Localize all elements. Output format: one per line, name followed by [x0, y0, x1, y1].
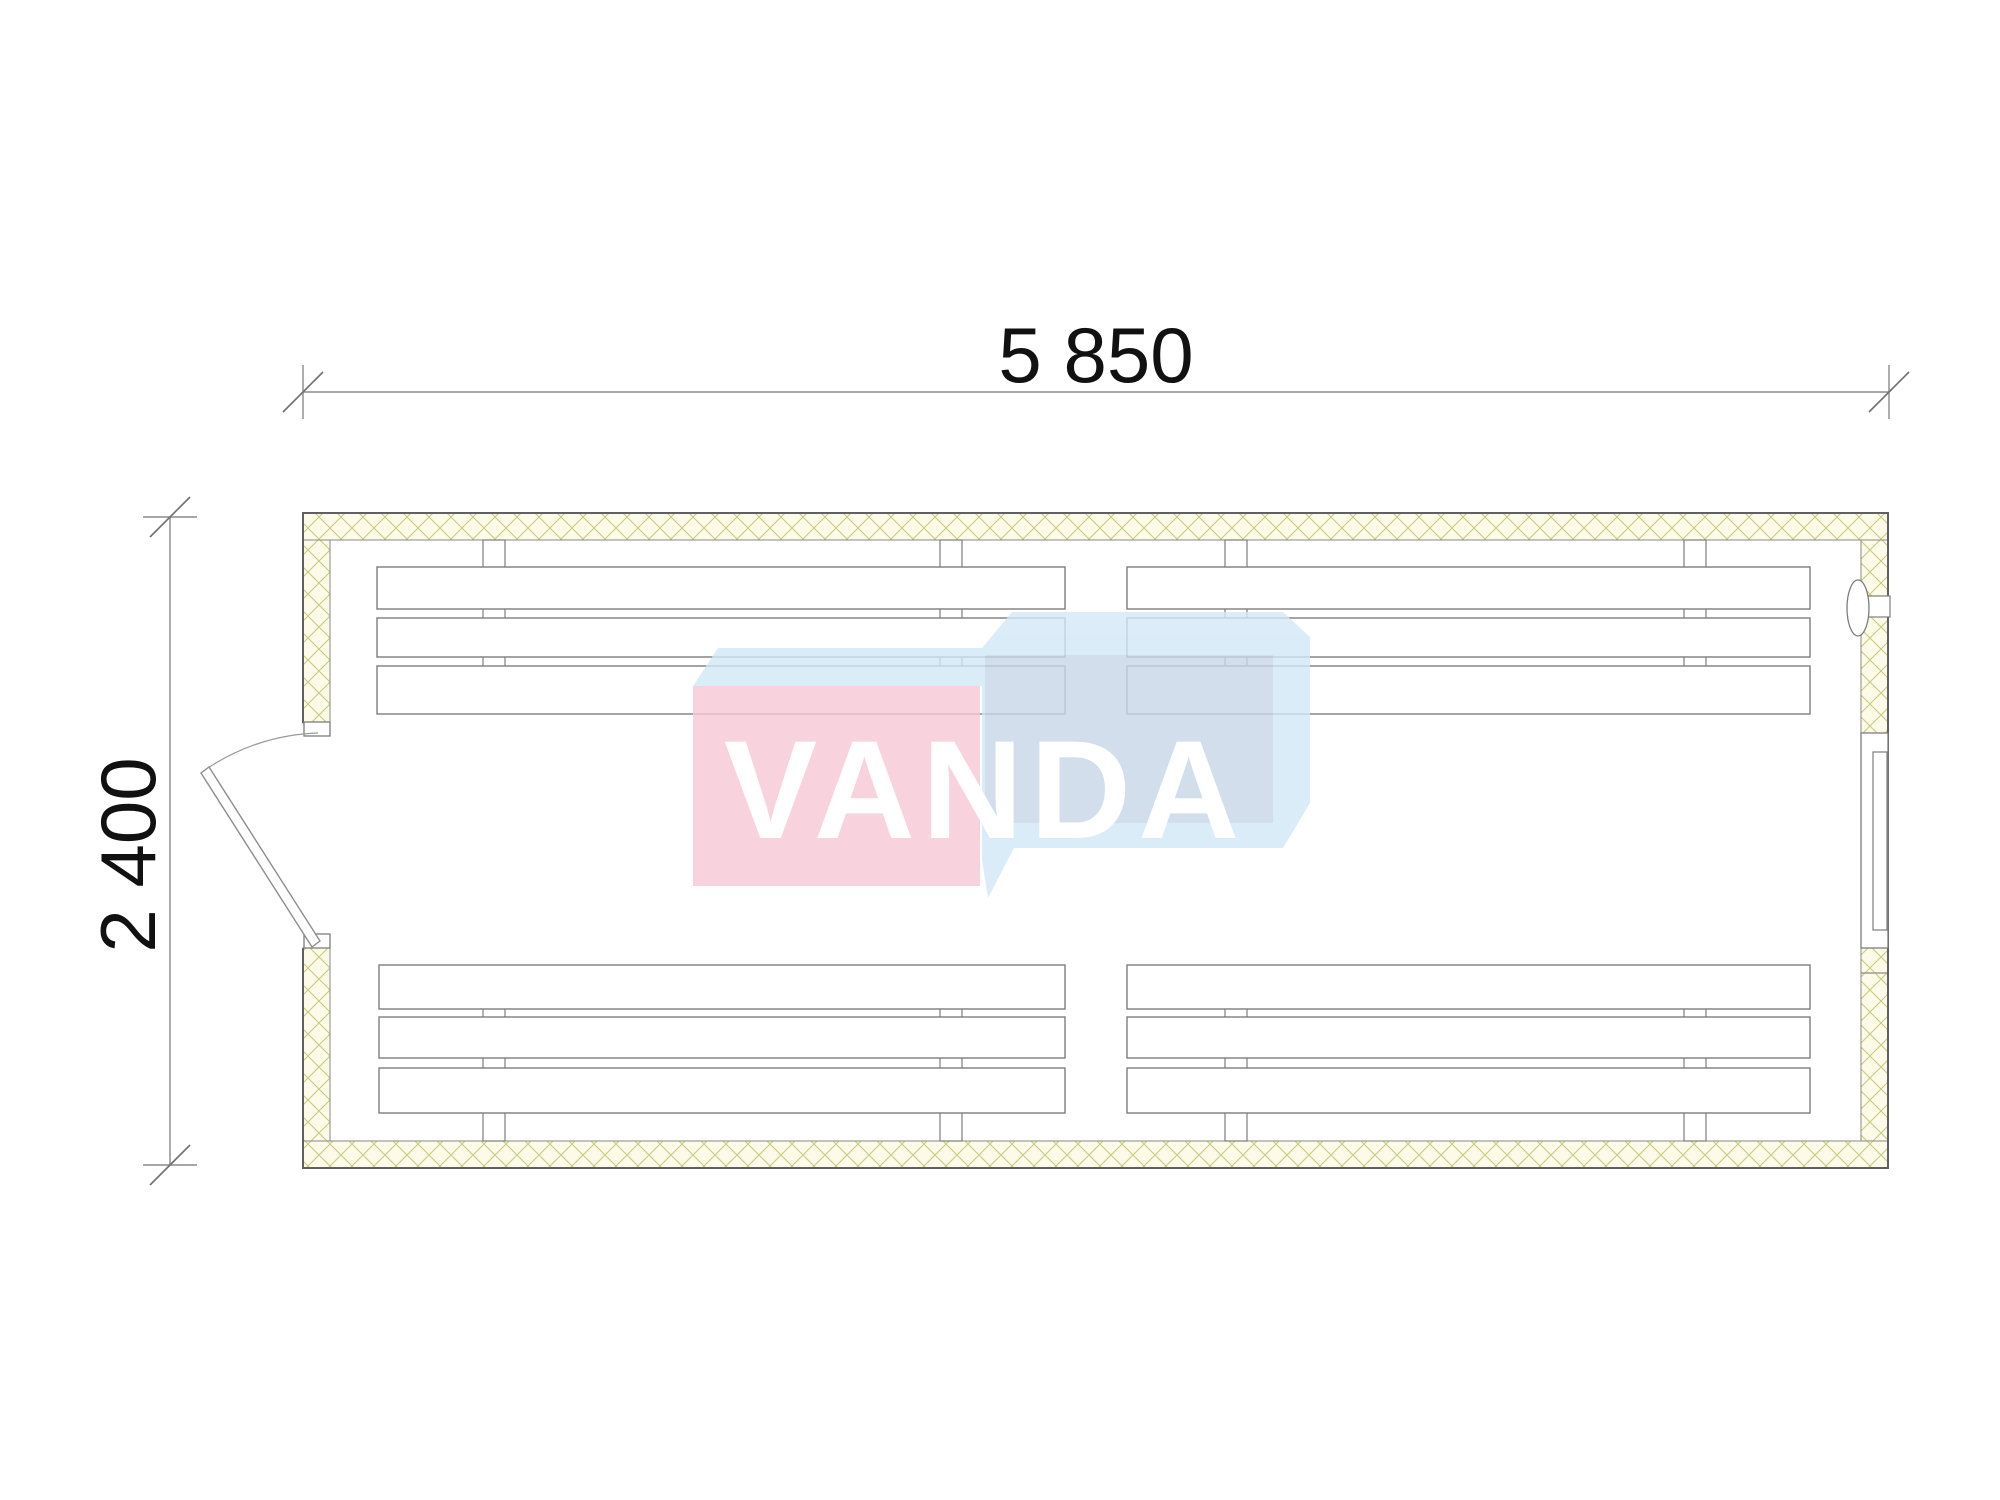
handle-plate	[1847, 580, 1869, 636]
vanda-watermark: VANDA	[693, 612, 1310, 898]
wall-left-upper	[303, 540, 330, 723]
door-leaf	[201, 767, 320, 947]
entrance-door	[201, 722, 330, 948]
wall-left-lower	[303, 948, 330, 1141]
logo-text: VANDA	[724, 711, 1246, 868]
dim-width-label: 5 850	[998, 311, 1193, 399]
window-leaf	[1873, 752, 1887, 930]
right-wall-window	[1861, 733, 1888, 948]
bench-bottom-left	[379, 965, 1065, 1141]
dim-height-label: 2 400	[84, 757, 172, 952]
wall-top	[303, 513, 1888, 540]
logo-pink-top-face	[693, 648, 982, 686]
door-swing-arc	[205, 733, 318, 770]
floor-plan-drawing: VANDA 5 850 2 400	[0, 0, 2000, 1500]
wall-right-lower	[1861, 948, 1888, 1141]
dimension-width: 5 850	[283, 311, 1909, 419]
wall-bottom	[303, 1141, 1888, 1168]
dimension-height: 2 400	[84, 497, 197, 1185]
floor-plan-canvas: VANDA 5 850 2 400	[0, 0, 2000, 1500]
bench-bottom-right	[1127, 965, 1810, 1141]
wall-right-upper	[1861, 540, 1888, 733]
